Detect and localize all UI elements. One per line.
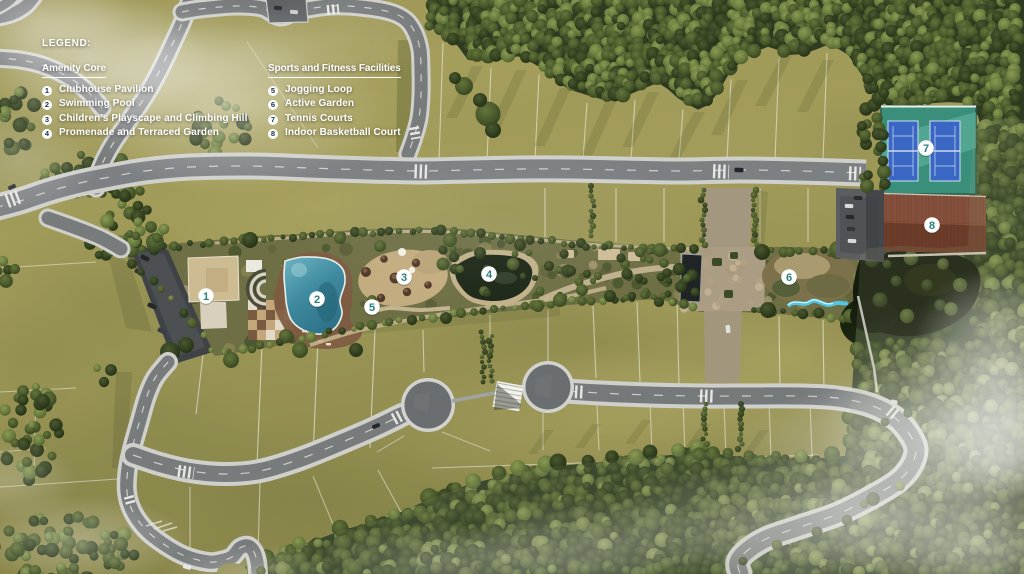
svg-text:1: 1: [203, 291, 209, 303]
svg-text:4: 4: [486, 269, 493, 281]
svg-text:5: 5: [369, 302, 375, 314]
svg-text:6: 6: [786, 272, 792, 284]
svg-text:7: 7: [923, 143, 929, 155]
svg-text:2: 2: [314, 294, 320, 306]
svg-text:3: 3: [401, 272, 407, 284]
svg-text:8: 8: [929, 220, 935, 232]
